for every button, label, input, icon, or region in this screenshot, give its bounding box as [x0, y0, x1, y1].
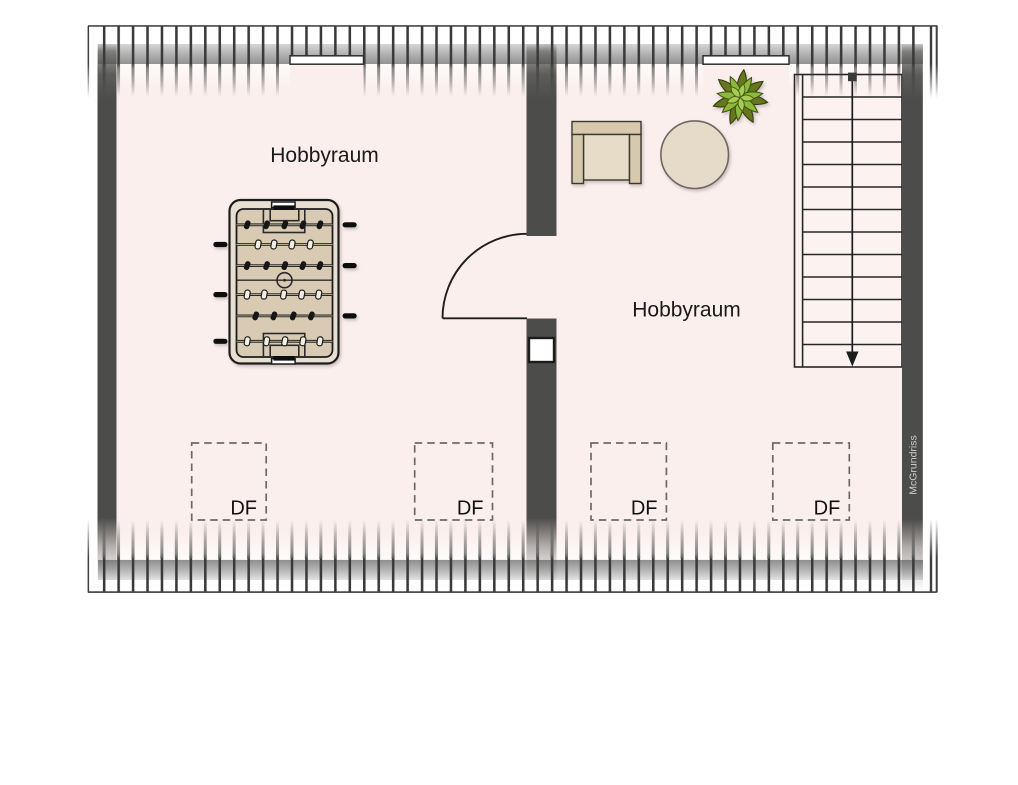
svg-text:Hobbyraum: Hobbyraum — [632, 299, 741, 322]
svg-text:Hobbyraum: Hobbyraum — [270, 144, 379, 167]
svg-text:McGrundriss: McGrundriss — [907, 435, 919, 495]
svg-text:DF: DF — [230, 498, 257, 520]
svg-text:DF: DF — [457, 498, 484, 520]
svg-text:DF: DF — [631, 498, 658, 520]
svg-text:DF: DF — [814, 498, 841, 520]
